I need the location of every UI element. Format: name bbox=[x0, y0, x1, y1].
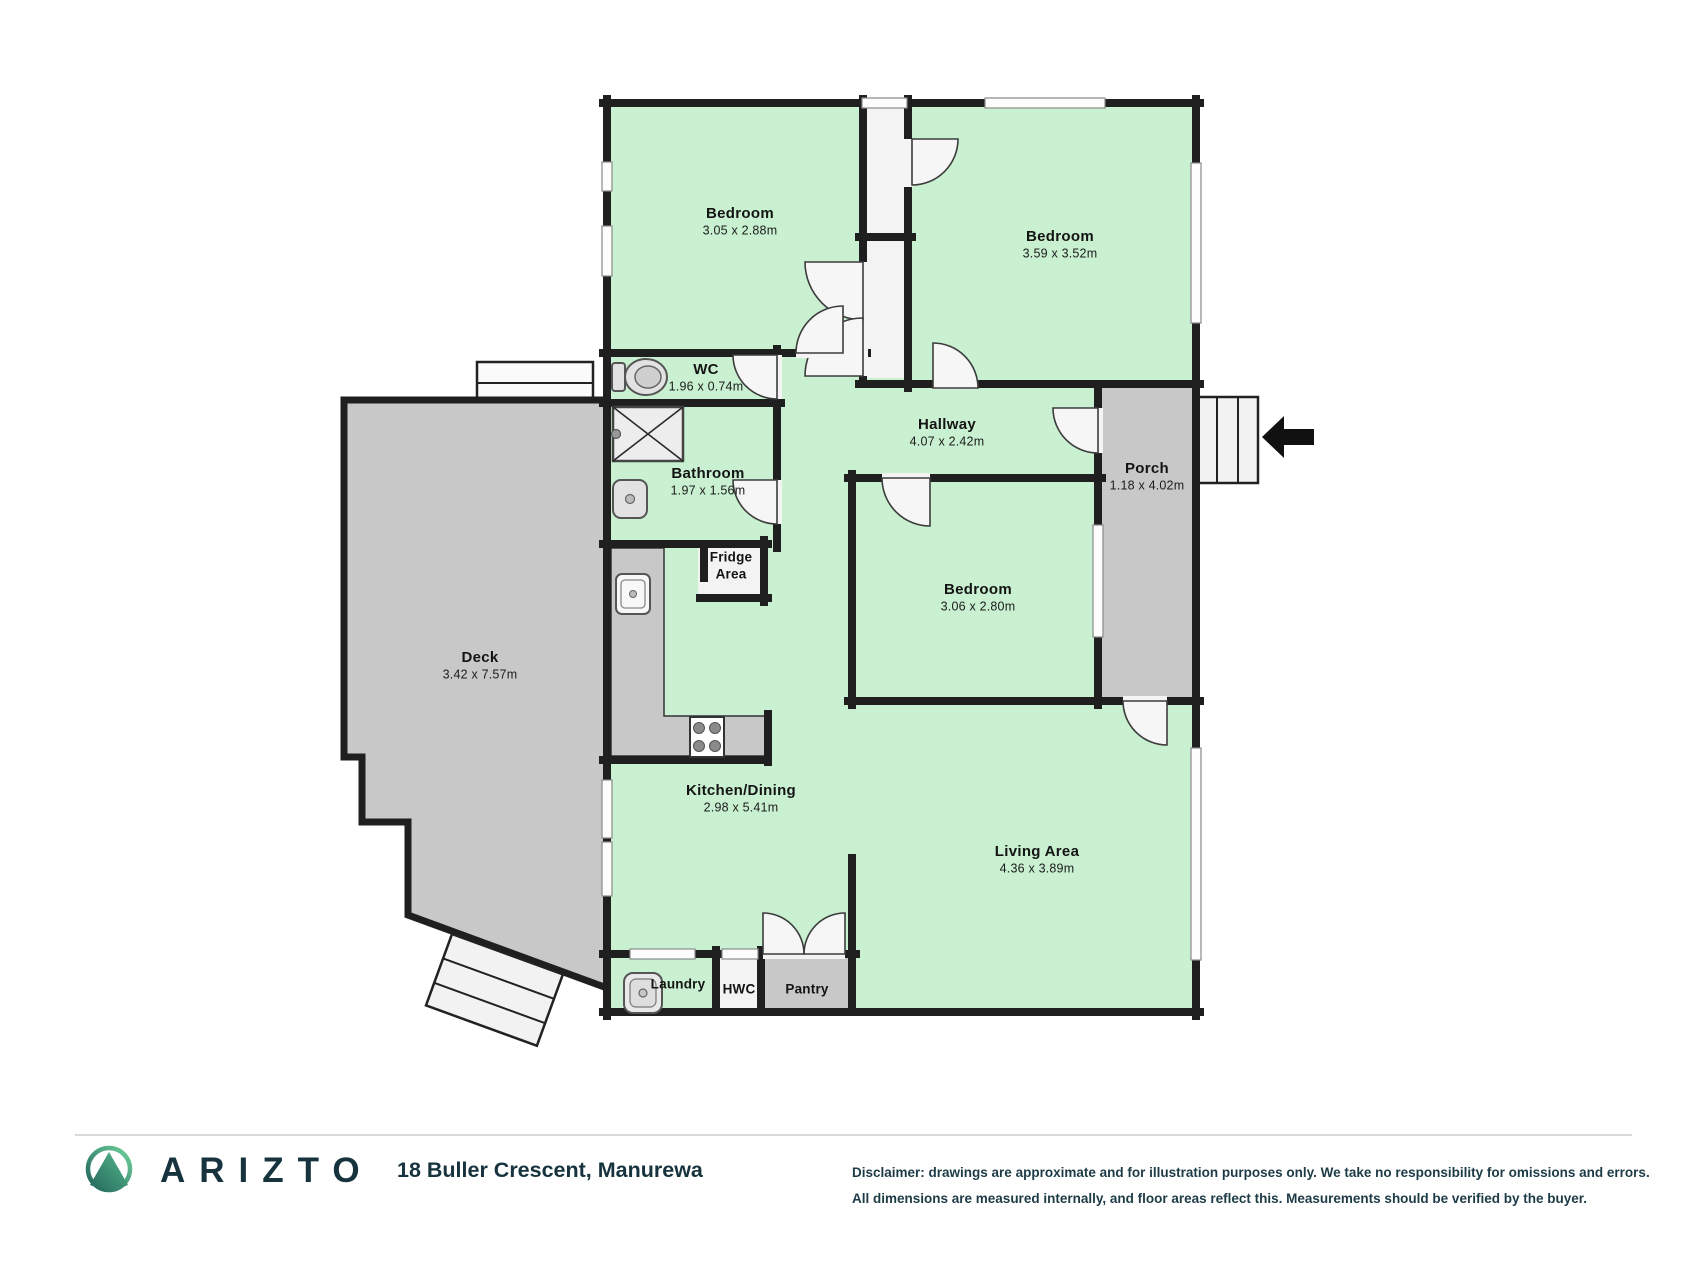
svg-text:4.07 x 2.42m: 4.07 x 2.42m bbox=[910, 434, 985, 448]
room-label-bedroom-top-left: Bedroom 3.05 x 2.88m bbox=[703, 205, 778, 237]
svg-text:3.05 x 2.88m: 3.05 x 2.88m bbox=[703, 223, 778, 237]
svg-text:Hallway: Hallway bbox=[918, 416, 976, 433]
svg-text:WC: WC bbox=[693, 361, 719, 378]
wardrobe-strip bbox=[867, 107, 904, 378]
room-label-bedroom-middle: Bedroom 3.06 x 2.80m bbox=[941, 581, 1016, 613]
room-label-laundry: Laundry bbox=[651, 977, 706, 992]
svg-text:3.59 x 3.52m: 3.59 x 3.52m bbox=[1023, 246, 1098, 260]
svg-text:Deck: Deck bbox=[461, 649, 498, 666]
bathroom-sink-icon bbox=[613, 480, 647, 518]
arizto-logo-icon bbox=[88, 1148, 130, 1190]
svg-text:1.96 x 0.74m: 1.96 x 0.74m bbox=[669, 379, 744, 393]
svg-text:Porch: Porch bbox=[1125, 460, 1169, 477]
deck-steps-top bbox=[477, 362, 593, 402]
svg-text:Pantry: Pantry bbox=[785, 982, 829, 997]
disclaimer-line-1: Disclaimer: drawings are approximate and… bbox=[852, 1165, 1650, 1180]
svg-text:1.18 x 4.02m: 1.18 x 4.02m bbox=[1110, 478, 1185, 492]
svg-text:2.98 x 5.41m: 2.98 x 5.41m bbox=[704, 800, 779, 814]
svg-text:Bedroom: Bedroom bbox=[706, 205, 774, 222]
svg-text:Area: Area bbox=[716, 567, 747, 582]
svg-text:Bathroom: Bathroom bbox=[671, 465, 744, 482]
room-label-hwc: HWC bbox=[723, 982, 756, 997]
svg-text:3.06 x 2.80m: 3.06 x 2.80m bbox=[941, 599, 1016, 613]
stove-icon bbox=[690, 717, 724, 757]
svg-text:Fridge: Fridge bbox=[710, 550, 753, 565]
svg-text:Living Area: Living Area bbox=[995, 843, 1080, 860]
room-label-living-area: Living Area 4.36 x 3.89m bbox=[995, 843, 1080, 875]
room-label-bedroom-top-right: Bedroom 3.59 x 3.52m bbox=[1023, 228, 1098, 260]
room-label-hallway: Hallway 4.07 x 2.42m bbox=[910, 416, 985, 448]
floor-plan-page: Bedroom 3.05 x 2.88m Bedroom 3.59 x 3.52… bbox=[0, 0, 1707, 1280]
room-label-bathroom: Bathroom 1.97 x 1.56m bbox=[671, 465, 746, 497]
svg-text:1.97 x 1.56m: 1.97 x 1.56m bbox=[671, 483, 746, 497]
room-label-pantry: Pantry bbox=[785, 982, 829, 997]
svg-text:Kitchen/Dining: Kitchen/Dining bbox=[686, 782, 796, 799]
brand-name: ARIZTO bbox=[160, 1151, 374, 1190]
shower-icon bbox=[612, 407, 684, 461]
disclaimer-line-2: All dimensions are measured internally, … bbox=[852, 1191, 1587, 1206]
porch-steps bbox=[1196, 397, 1258, 483]
toilet-icon bbox=[612, 359, 667, 395]
entry-arrow-icon bbox=[1262, 416, 1314, 458]
svg-text:Bedroom: Bedroom bbox=[944, 581, 1012, 598]
svg-text:Bedroom: Bedroom bbox=[1026, 228, 1094, 245]
kitchen-sink-icon bbox=[616, 574, 650, 614]
deck-area bbox=[344, 362, 607, 1046]
porch-floor bbox=[1102, 388, 1192, 697]
svg-text:3.42 x 7.57m: 3.42 x 7.57m bbox=[443, 667, 518, 681]
property-address: 18 Buller Crescent, Manurewa bbox=[397, 1158, 704, 1182]
svg-text:Laundry: Laundry bbox=[651, 977, 706, 992]
svg-text:4.36 x 3.89m: 4.36 x 3.89m bbox=[1000, 861, 1075, 875]
svg-text:HWC: HWC bbox=[723, 982, 756, 997]
floor-plan: Bedroom 3.05 x 2.88m Bedroom 3.59 x 3.52… bbox=[0, 0, 1707, 1280]
